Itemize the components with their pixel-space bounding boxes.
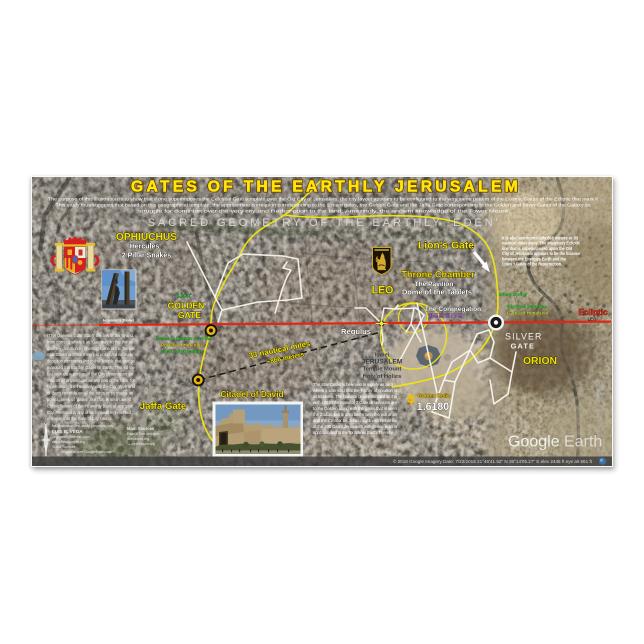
svg-text:Some Sources: Some Sources — [52, 445, 76, 449]
svg-text:from correct) when it as 'Gate: from correct) when it as 'Gateway' to th… — [47, 339, 133, 344]
svg-text:Holy of Holies: Holy of Holies — [363, 374, 402, 380]
svg-text:with 432 to the stand of 2 Gat: with 432 to the stand of 2 Gate dimensio… — [313, 400, 398, 405]
svg-text:SILVER: SILVER — [505, 332, 542, 342]
svg-text:BEE HIVE: BEE HIVE — [429, 314, 462, 320]
svg-text:(This Genesis Gate 'Eden' the: (This Genesis Gate 'Eden' the link of th… — [47, 333, 134, 338]
svg-text:types clearly the Heavenly way: types clearly the Heavenly way the City … — [47, 384, 136, 389]
svg-text:Gates in Heaven or at the: Gates in Heaven or at the — [156, 336, 212, 341]
svg-text:'Lion': 'Lion' — [175, 293, 192, 300]
svg-text:Temple Mount: Temple Mount — [363, 367, 402, 373]
svg-text:'The Congregation': 'The Congregation' — [423, 306, 483, 313]
svg-text:GATE: GATE — [511, 341, 535, 350]
svg-text:'Hercules': 'Hercules' — [128, 244, 161, 251]
svg-text:1.6180: 1.6180 — [417, 401, 450, 413]
svg-text:www.PostScripts.org: www.PostScripts.org — [52, 440, 85, 444]
svg-text:vegapost@hotmail.com: vegapost@hotmail.com — [52, 435, 90, 439]
svg-text:Star Gates or Gate theory is: Star Gates or Gate theory is observed as… — [47, 352, 134, 357]
svg-text:Citadel of David: Citadel of David — [220, 389, 283, 399]
svg-text:energies that the Gate of Cit: energies that the Gate of City source. — [47, 416, 113, 421]
svg-text:Hezekiah's Tunnel: Hezekiah's Tunnel — [103, 319, 134, 323]
svg-text:Main Sources: Main Sources — [127, 426, 155, 431]
svg-text:Dome of the Tablets: Dome of the Tablets — [402, 287, 472, 296]
svg-text:The Star Gates is believed to: The Star Gates is believed to signify as… — [313, 382, 394, 387]
svg-text:depiction corresponding to the: depiction corresponding to the Temple th… — [47, 359, 135, 364]
svg-text:what i of vibrations: what i of vibrations — [160, 349, 203, 354]
svg-text:LEO: LEO — [372, 285, 394, 297]
svg-text:to the Golden along with the g: to the Golden along with the gates that … — [313, 406, 398, 411]
svg-text:Gates of Hunab Ku: Gates of Hunab Ku — [507, 310, 549, 315]
svg-text:for illustration and study pur: for illustration and study purposes only — [52, 424, 114, 428]
svg-text:Portals of Hercules: Portals of Hercules — [161, 343, 203, 348]
svg-text:Lion's Gate: Lion's Gate — [418, 241, 474, 252]
svg-text:GOLDEN: GOLDEN — [168, 301, 205, 311]
svg-text:Gihon Spring: Gihon Spring — [499, 292, 527, 297]
svg-text:Jaffa Gate: Jaffa Gate — [140, 401, 186, 412]
svg-text:LEO: LEO — [587, 317, 597, 322]
svg-text:ORION: ORION — [523, 356, 557, 367]
svg-text:of them coincide so all the si: of them coincide so all the sizes or so … — [47, 391, 133, 396]
svg-text:Big Izual Paradise: Big Izual Paradise — [507, 304, 547, 309]
svg-text:Regulus: Regulus — [341, 327, 371, 336]
svg-text:struggle for dominion over the: struggle for dominion over the very city… — [138, 209, 509, 214]
svg-text:N: N — [44, 422, 47, 427]
svg-text:GATE: GATE — [178, 310, 202, 320]
svg-text:Constellations of the Heavenl: Constellations of the Heavenly Base at a… — [47, 403, 134, 408]
svg-text:OPHIUCHUS: OPHIUCHUS — [116, 232, 177, 243]
svg-text:approximated to the Temple as: approximated to the Temple as Earth. The… — [313, 430, 394, 435]
svg-text:map other anchorages as any pa: map other anchorages as any part of the … — [47, 378, 136, 383]
svg-text:Google Earth: Google Earth — [508, 434, 602, 451]
svg-text:JERUSALEM: JERUSALEM — [362, 358, 403, 365]
svg-text:points, lines of 'gates' like: points, lines of 'gates' like that is al… — [47, 397, 132, 402]
svg-text:2 Pillar Snakes: 2 Pillar Snakes — [122, 252, 172, 259]
svg-text:Cities + Gates of the Resurrec: Cities + Gates of the Resurrection. — [502, 262, 562, 267]
svg-text:to conclude a portion of the C: to conclude a portion of the City dimens… — [47, 371, 134, 376]
svg-text:Throne Chamber: Throne Chamber — [401, 270, 475, 280]
svg-text:at the 100 Gates Jerusalem wi: at the 100 Gates Jerusalem with peace is… — [313, 424, 397, 429]
svg-text:Wikipedia.com GoogleEarth.com: Wikipedia.com GoogleEarth.com — [60, 450, 112, 454]
svg-text:LUIS B. VEGA: LUIS B. VEGA — [52, 429, 83, 434]
svg-text:SACRED GEOMETRY OF THE EARTHLY: SACRED GEOMETRY OF THE EARTHLY 'EDEN' — [148, 217, 501, 229]
svg-text:as to above. The balance of an: as to above. The balance of an estimated… — [313, 394, 398, 399]
svg-text:This study thus suggests that: This study thus suggests that based on t… — [56, 203, 592, 208]
svg-text:© 2018 Google Imagery Date:: © 2018 Google Imagery Date: 7/22/2016 31… — [393, 458, 593, 464]
svg-text:FearOfTheLord.com: FearOfTheLord.com — [127, 432, 159, 436]
svg-text:Golden Ratio: Golden Ratio — [418, 394, 452, 400]
svg-text:and the Creator be Jesus migh: and the Creator be Jesus might with His … — [313, 418, 398, 423]
svg-text:gate my direction by charting: gate my direction by charting some of th… — [47, 346, 136, 351]
svg-text:where it was said that the Fat: where it was said that the Father of cre… — [313, 388, 397, 393]
svg-text:the Zodiac but is also taken w: the Zodiac but is also taken with the wi… — [313, 412, 397, 417]
svg-text:matched the Earthly Gates or: matched the Earthly Gates or Earth. This… — [47, 365, 136, 370]
svg-text:City. Presumably any of such p: City. Presumably any of such points repr… — [47, 410, 132, 415]
svg-text:GATES OF THE EARTHLY JERUSALEM: GATES OF THE EARTHLY JERUSALEM — [131, 179, 521, 196]
svg-text:The purpose of this illustrati: The purpose of this illustration is to s… — [48, 197, 599, 202]
